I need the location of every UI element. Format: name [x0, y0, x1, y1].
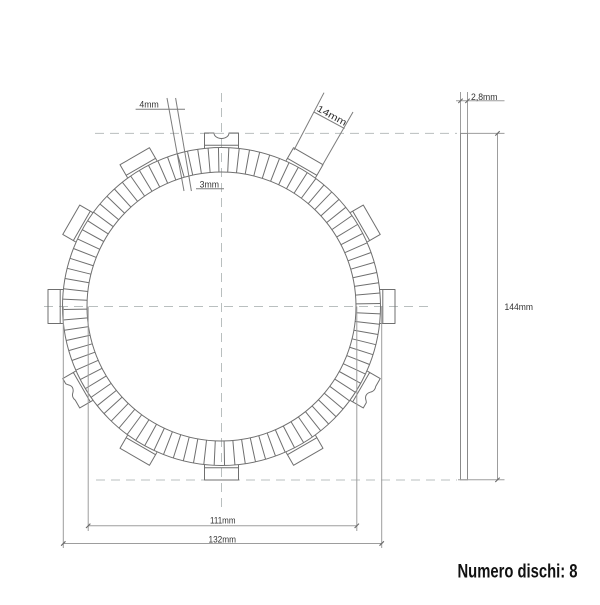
svg-text:132mm: 132mm: [209, 535, 237, 546]
svg-text:144mm: 144mm: [505, 302, 534, 313]
svg-text:2,8mm: 2,8mm: [471, 92, 498, 103]
svg-text:4mm: 4mm: [139, 100, 158, 111]
svg-text:111mm: 111mm: [210, 515, 236, 526]
svg-text:3mm: 3mm: [200, 179, 219, 190]
svg-text:14mm: 14mm: [315, 103, 349, 128]
svg-text:Numero dischi: 8: Numero dischi: 8: [458, 561, 578, 582]
